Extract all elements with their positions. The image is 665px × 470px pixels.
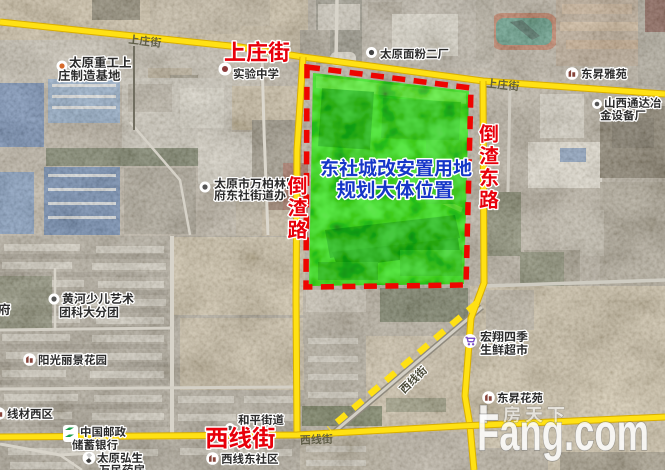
svg-text:Fang.com: Fang.com	[477, 404, 649, 462]
